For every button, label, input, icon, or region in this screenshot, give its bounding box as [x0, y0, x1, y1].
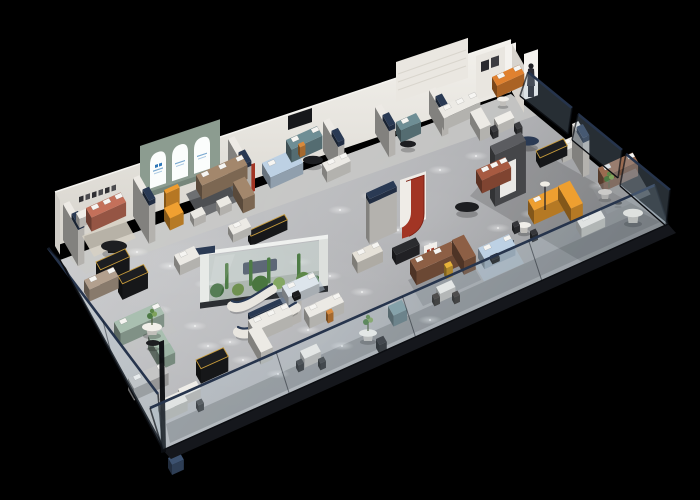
showroom-render-stage: 3D isometric cutaway render of a furnitu… [0, 0, 700, 500]
isometric-showroom-render: 3D isometric cutaway render of a furnitu… [0, 0, 700, 500]
coffee-table-black-oval-2 [455, 202, 479, 218]
pillow-orange-1 [298, 142, 305, 158]
left-end-wall [55, 192, 60, 255]
pillow-orange-2 [326, 309, 333, 324]
